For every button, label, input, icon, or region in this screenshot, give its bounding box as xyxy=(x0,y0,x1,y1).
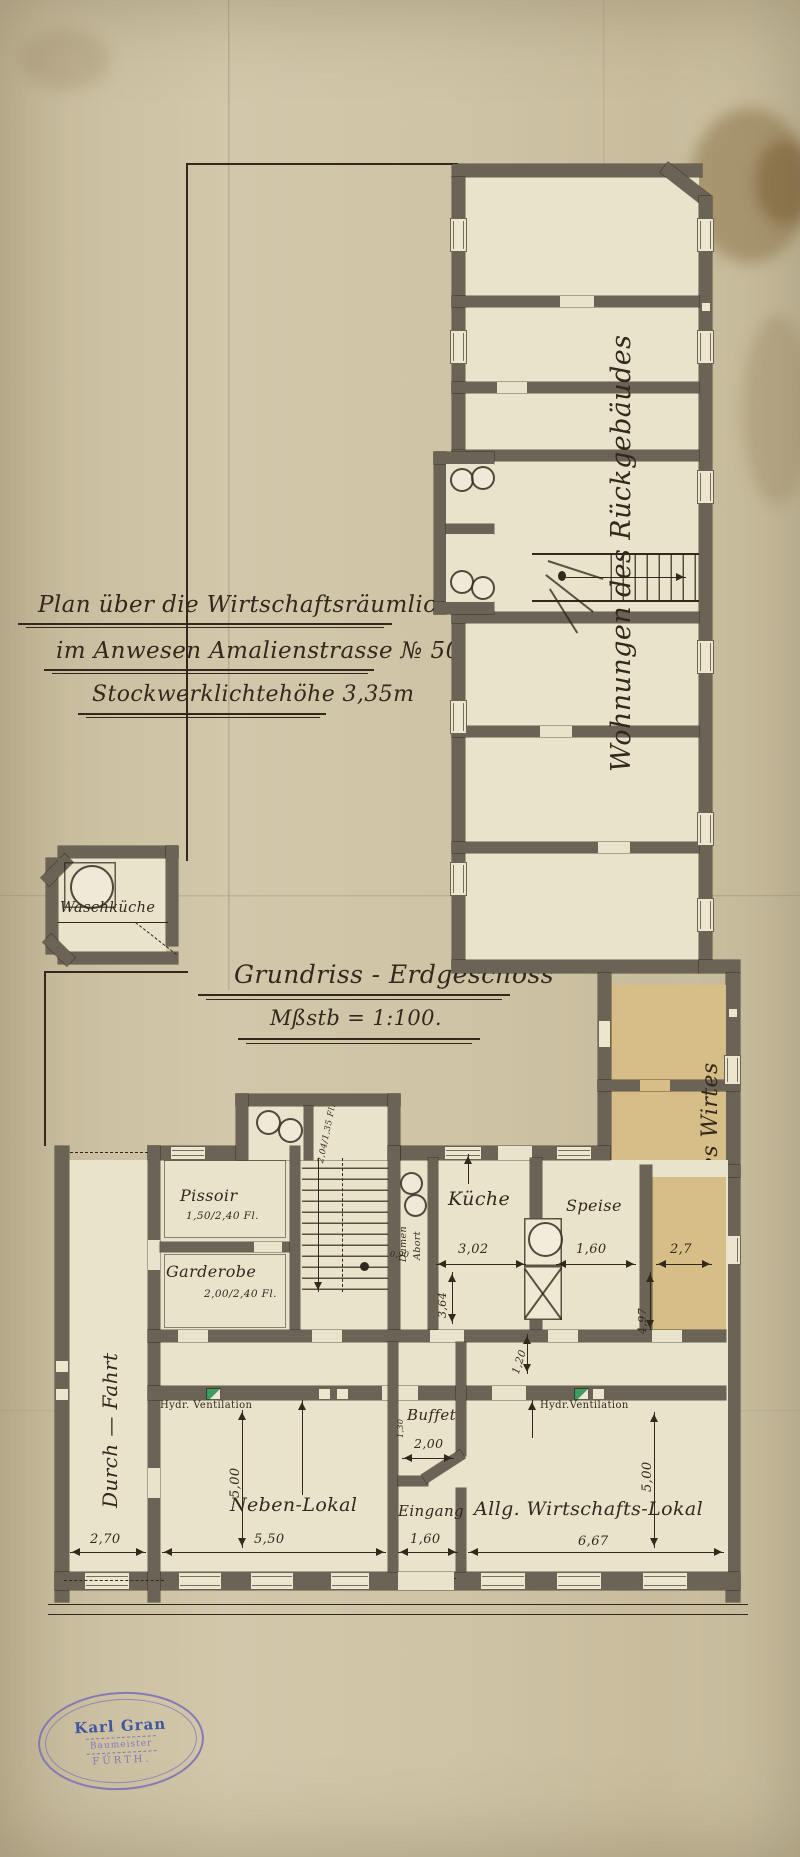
dim-line xyxy=(402,1458,454,1459)
stair-rail-dashed xyxy=(342,1158,343,1292)
entry-door-gap xyxy=(398,1572,454,1590)
door-gap xyxy=(497,382,527,393)
wall xyxy=(434,452,446,614)
dim-abort-width: 0,90 xyxy=(390,1250,409,1259)
dim-passage-width: 2,70 xyxy=(90,1532,121,1547)
garderobe-size: 2,00/2,40 Fl. xyxy=(204,1288,277,1300)
wall xyxy=(55,1146,69,1602)
wall xyxy=(236,1094,248,1160)
dim-wirt-width: 2,7 xyxy=(670,1242,692,1257)
room-label-allg-lokal: Allg. Wirtschafts-Lokal xyxy=(474,1498,703,1520)
stair-treads xyxy=(302,1158,388,1292)
dim-line xyxy=(556,1264,636,1265)
courtyard-outline xyxy=(186,163,188,861)
window xyxy=(724,1055,741,1085)
toilet-bowl xyxy=(400,1172,423,1195)
wall xyxy=(699,196,712,972)
wall xyxy=(456,1488,466,1572)
vent-pointer-arrow xyxy=(302,1400,303,1495)
door-arrow xyxy=(468,1154,469,1184)
room-label-kueche: Küche xyxy=(448,1188,510,1210)
hydr-ventilation-note-right: Hydr.Ventilation xyxy=(540,1400,629,1411)
dim-neben-depth: 5,00 xyxy=(228,1467,243,1498)
sill-dashed xyxy=(64,1580,164,1581)
underline xyxy=(52,673,368,674)
floor-plan-sheet: Plan über die Wirtschaftsräumlichkeiten … xyxy=(0,0,800,1857)
room-label-pissoir: Pissoir xyxy=(180,1186,238,1205)
window xyxy=(697,330,714,364)
door-gap xyxy=(652,1330,682,1342)
dim-line xyxy=(162,1552,386,1553)
stove-box xyxy=(524,1266,562,1320)
stair-newel xyxy=(360,1262,369,1271)
door-gap xyxy=(640,1080,670,1091)
stair-direction-arrow xyxy=(318,1158,319,1292)
room-label-eingang: Eingang xyxy=(398,1502,464,1520)
yard-outline xyxy=(44,972,46,1146)
underline xyxy=(206,999,502,1000)
opening-dashed xyxy=(70,1152,148,1153)
underline xyxy=(86,717,320,718)
dim-line xyxy=(436,1264,526,1265)
dim-line xyxy=(656,1264,712,1265)
window xyxy=(178,1572,222,1590)
dim-line xyxy=(242,1410,243,1548)
window xyxy=(697,898,714,932)
underline xyxy=(26,627,384,628)
wall xyxy=(58,952,178,964)
yard-outline xyxy=(44,971,188,973)
window xyxy=(697,812,714,846)
dim-line xyxy=(468,1552,724,1553)
window xyxy=(450,700,467,734)
door-gap xyxy=(548,1330,578,1342)
plan-caption-scale: Mßstb = 1:100. xyxy=(270,1006,442,1030)
fold-crease xyxy=(228,0,230,990)
dim-line xyxy=(650,1272,651,1330)
pissoir-size: 1,50/2,40 Fl. xyxy=(186,1210,259,1222)
door-gap xyxy=(312,1330,342,1342)
dim-line xyxy=(398,1552,458,1553)
room-label-neben-lokal: Neben-Lokal xyxy=(230,1494,357,1516)
dim-eingang-width: 1,60 xyxy=(410,1532,441,1547)
wall xyxy=(58,846,178,858)
wall xyxy=(148,1386,726,1400)
door-gap xyxy=(148,1468,160,1498)
ventilation-shaft xyxy=(206,1388,221,1400)
door-gap xyxy=(540,726,572,737)
wall xyxy=(434,452,494,464)
durchfahrt-label: Durch — Fahrt xyxy=(98,1353,122,1508)
door-gap xyxy=(560,296,594,307)
courtyard-outline xyxy=(186,163,458,165)
dim-line xyxy=(452,1272,453,1324)
dim-allg-depth: 5,00 xyxy=(640,1461,655,1492)
door-gap xyxy=(492,1386,526,1400)
door-gap xyxy=(178,1330,208,1342)
paper-stain xyxy=(20,30,110,90)
dim-line xyxy=(70,1552,146,1553)
window xyxy=(480,1572,526,1590)
wall xyxy=(148,1146,160,1602)
door-gap xyxy=(498,1146,532,1160)
title-line-3: Stockwerklichtehöhe 3,35m xyxy=(92,682,414,707)
underline xyxy=(198,994,510,996)
dim-kueche-depth: 3,64 xyxy=(436,1292,449,1318)
underline xyxy=(58,922,168,923)
wall xyxy=(388,1342,398,1572)
wall-niche xyxy=(55,1388,69,1401)
stair-arrow-start xyxy=(558,571,566,581)
rear-wing-label: Wohnungen des Rückgebäudes xyxy=(606,335,637,772)
window xyxy=(556,1572,602,1590)
wall xyxy=(456,1342,466,1456)
room-label-speise: Speise xyxy=(566,1196,622,1215)
window xyxy=(697,218,714,252)
wall xyxy=(434,602,494,614)
wall xyxy=(236,1094,400,1106)
dim-speise-width: 1,60 xyxy=(576,1242,607,1257)
wall-niche xyxy=(701,302,711,312)
toilet-bowl xyxy=(471,466,495,490)
wall xyxy=(452,842,699,853)
window-pair xyxy=(318,1388,331,1400)
window xyxy=(556,1146,592,1160)
window xyxy=(697,470,714,504)
wall xyxy=(290,1146,300,1332)
boiler-kettle xyxy=(528,1222,563,1257)
wall xyxy=(699,960,740,973)
dim-kueche-width: 3,02 xyxy=(458,1242,489,1257)
window xyxy=(84,1572,130,1590)
stove-x-line xyxy=(524,1268,562,1320)
room-label-garderobe: Garderobe xyxy=(166,1262,256,1281)
window xyxy=(330,1572,370,1590)
window-pair xyxy=(592,1388,605,1400)
builder-stamp: Karl Gran Baumeister FÜRTH. xyxy=(36,1688,207,1795)
door-opening xyxy=(598,1020,611,1048)
wall-niche xyxy=(728,1008,738,1018)
title-line-2: im Anwesen Amalienstrasse № 50. xyxy=(56,638,468,664)
damen-abort-label-2: Abort xyxy=(412,1231,423,1260)
door-gap xyxy=(598,842,630,853)
underline xyxy=(246,1043,472,1044)
room-label-buffet: Buffet xyxy=(407,1406,456,1424)
fold-crease xyxy=(603,0,605,166)
wall xyxy=(446,524,494,534)
dim-allg-width: 6,67 xyxy=(578,1534,609,1549)
dim-buffet-depth: 1,30 xyxy=(396,1419,405,1438)
sidewalk-line xyxy=(48,1604,748,1605)
paper-stain xyxy=(742,315,800,505)
window xyxy=(450,330,467,364)
window xyxy=(444,1146,482,1160)
window xyxy=(450,862,467,896)
underline xyxy=(18,623,392,625)
toilet-bowl xyxy=(278,1118,303,1143)
door-gap xyxy=(254,1242,282,1252)
window xyxy=(250,1572,294,1590)
wall xyxy=(166,846,178,946)
window xyxy=(697,640,714,674)
toilet-bowl xyxy=(404,1194,427,1217)
dim-line xyxy=(527,1334,528,1374)
dim-buffet-width: 2,00 xyxy=(414,1436,443,1451)
vent-pointer-arrow xyxy=(532,1400,533,1438)
wall xyxy=(452,960,699,973)
underline xyxy=(238,1038,480,1040)
toilet-bowl xyxy=(471,576,495,600)
dim-line xyxy=(654,1412,655,1548)
room-label-waschkueche: Waschküche xyxy=(60,900,155,916)
wall-niche xyxy=(55,1360,69,1373)
wall xyxy=(304,1106,313,1160)
wall xyxy=(452,726,699,737)
window xyxy=(642,1572,688,1590)
door-gap xyxy=(148,1240,160,1270)
door-gap xyxy=(430,1330,464,1342)
window-pair xyxy=(336,1388,349,1400)
ventilation-shaft xyxy=(574,1388,589,1400)
wall xyxy=(452,382,699,393)
window xyxy=(450,218,467,252)
dim-neben-width: 5,50 xyxy=(254,1532,285,1547)
sidewalk-line xyxy=(48,1614,748,1615)
window xyxy=(170,1146,206,1160)
underline xyxy=(78,713,326,715)
underline xyxy=(44,669,374,671)
